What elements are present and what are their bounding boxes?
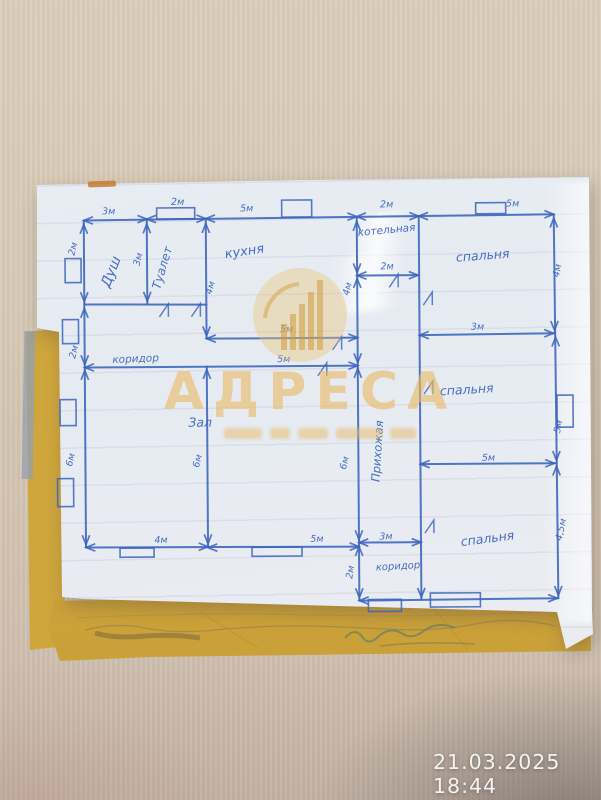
room-label: Туалет <box>149 244 175 291</box>
dimension-label: 5м <box>277 354 290 365</box>
plan-wall <box>207 367 208 547</box>
dimension-label: 2м <box>344 565 357 580</box>
dimension-label: 4м <box>204 280 218 296</box>
dimension-label: 2м <box>380 261 393 272</box>
dimension-label: 5м <box>506 198 519 209</box>
dimension-label: 3м <box>379 531 392 542</box>
dimension-label: 5м <box>552 419 565 434</box>
window-symbol <box>157 208 195 219</box>
window-symbol <box>58 479 74 507</box>
dimension-label: 6м <box>64 452 78 468</box>
plan-group: ДушТуалеткухнякотельнаяспальнякоридорЗал… <box>56 194 575 614</box>
door-mark <box>191 304 200 317</box>
plan-wall <box>207 338 358 339</box>
window-symbol <box>120 548 154 557</box>
dimension-label: 3м <box>132 252 146 268</box>
dimension-label: 5м <box>280 324 293 335</box>
plan-wall <box>147 219 148 304</box>
dimension-label: 2м <box>380 199 393 210</box>
plan-wall <box>85 366 358 368</box>
plan-wall <box>84 221 86 548</box>
door-mark <box>425 520 434 533</box>
room-label: спальня <box>455 246 510 265</box>
window-symbol <box>252 547 302 556</box>
dimension-label: 5м <box>240 203 253 214</box>
window-symbol <box>282 200 312 217</box>
photo-background: ДушТуалеткухнякотельнаяспальнякоридорЗал… <box>0 0 601 800</box>
dimension-label: 2м <box>67 344 81 360</box>
dimension-label: 4м <box>341 281 355 297</box>
door-mark <box>159 304 168 317</box>
room-label: Зал <box>188 415 212 430</box>
door-mark <box>424 381 433 394</box>
dimension-label: 5м <box>482 453 495 464</box>
door-mark <box>423 292 432 305</box>
room-label: Душ <box>98 254 125 291</box>
dimension-label: 3м <box>471 322 484 333</box>
dimension-label: 3м <box>102 206 115 217</box>
dimension-label: 2м <box>171 197 184 208</box>
dimension-label: 6м <box>338 455 352 471</box>
room-label: кухня <box>224 242 266 263</box>
dimension-label: 4,5м <box>554 518 569 542</box>
floor-plan-drawing: ДушТуалеткухнякотельнаяспальнякоридорЗал… <box>0 0 601 800</box>
window-symbol <box>476 203 506 214</box>
room-label: котельная <box>357 222 416 239</box>
camera-timestamp: 21.03.2025 18:44 <box>433 750 601 798</box>
dimension-label: 6м <box>191 453 205 469</box>
window-symbol <box>60 400 76 426</box>
room-label: спальня <box>439 380 494 398</box>
dimension-label: 5м <box>310 534 323 545</box>
dimension-label: 4м <box>551 263 564 278</box>
window-symbol <box>65 259 81 283</box>
dimension-label: 2м <box>67 241 81 257</box>
plan-wall <box>84 304 206 306</box>
plan-wall <box>206 219 207 339</box>
room-label: коридор <box>376 560 421 574</box>
window-symbol <box>62 320 78 344</box>
plan-wall <box>420 333 555 335</box>
room-label: Прихожая <box>368 420 386 482</box>
dimension-label: 4м <box>154 535 167 546</box>
room-label: спальня <box>460 527 516 549</box>
room-label: коридор <box>112 352 159 366</box>
door-mark <box>318 363 327 376</box>
